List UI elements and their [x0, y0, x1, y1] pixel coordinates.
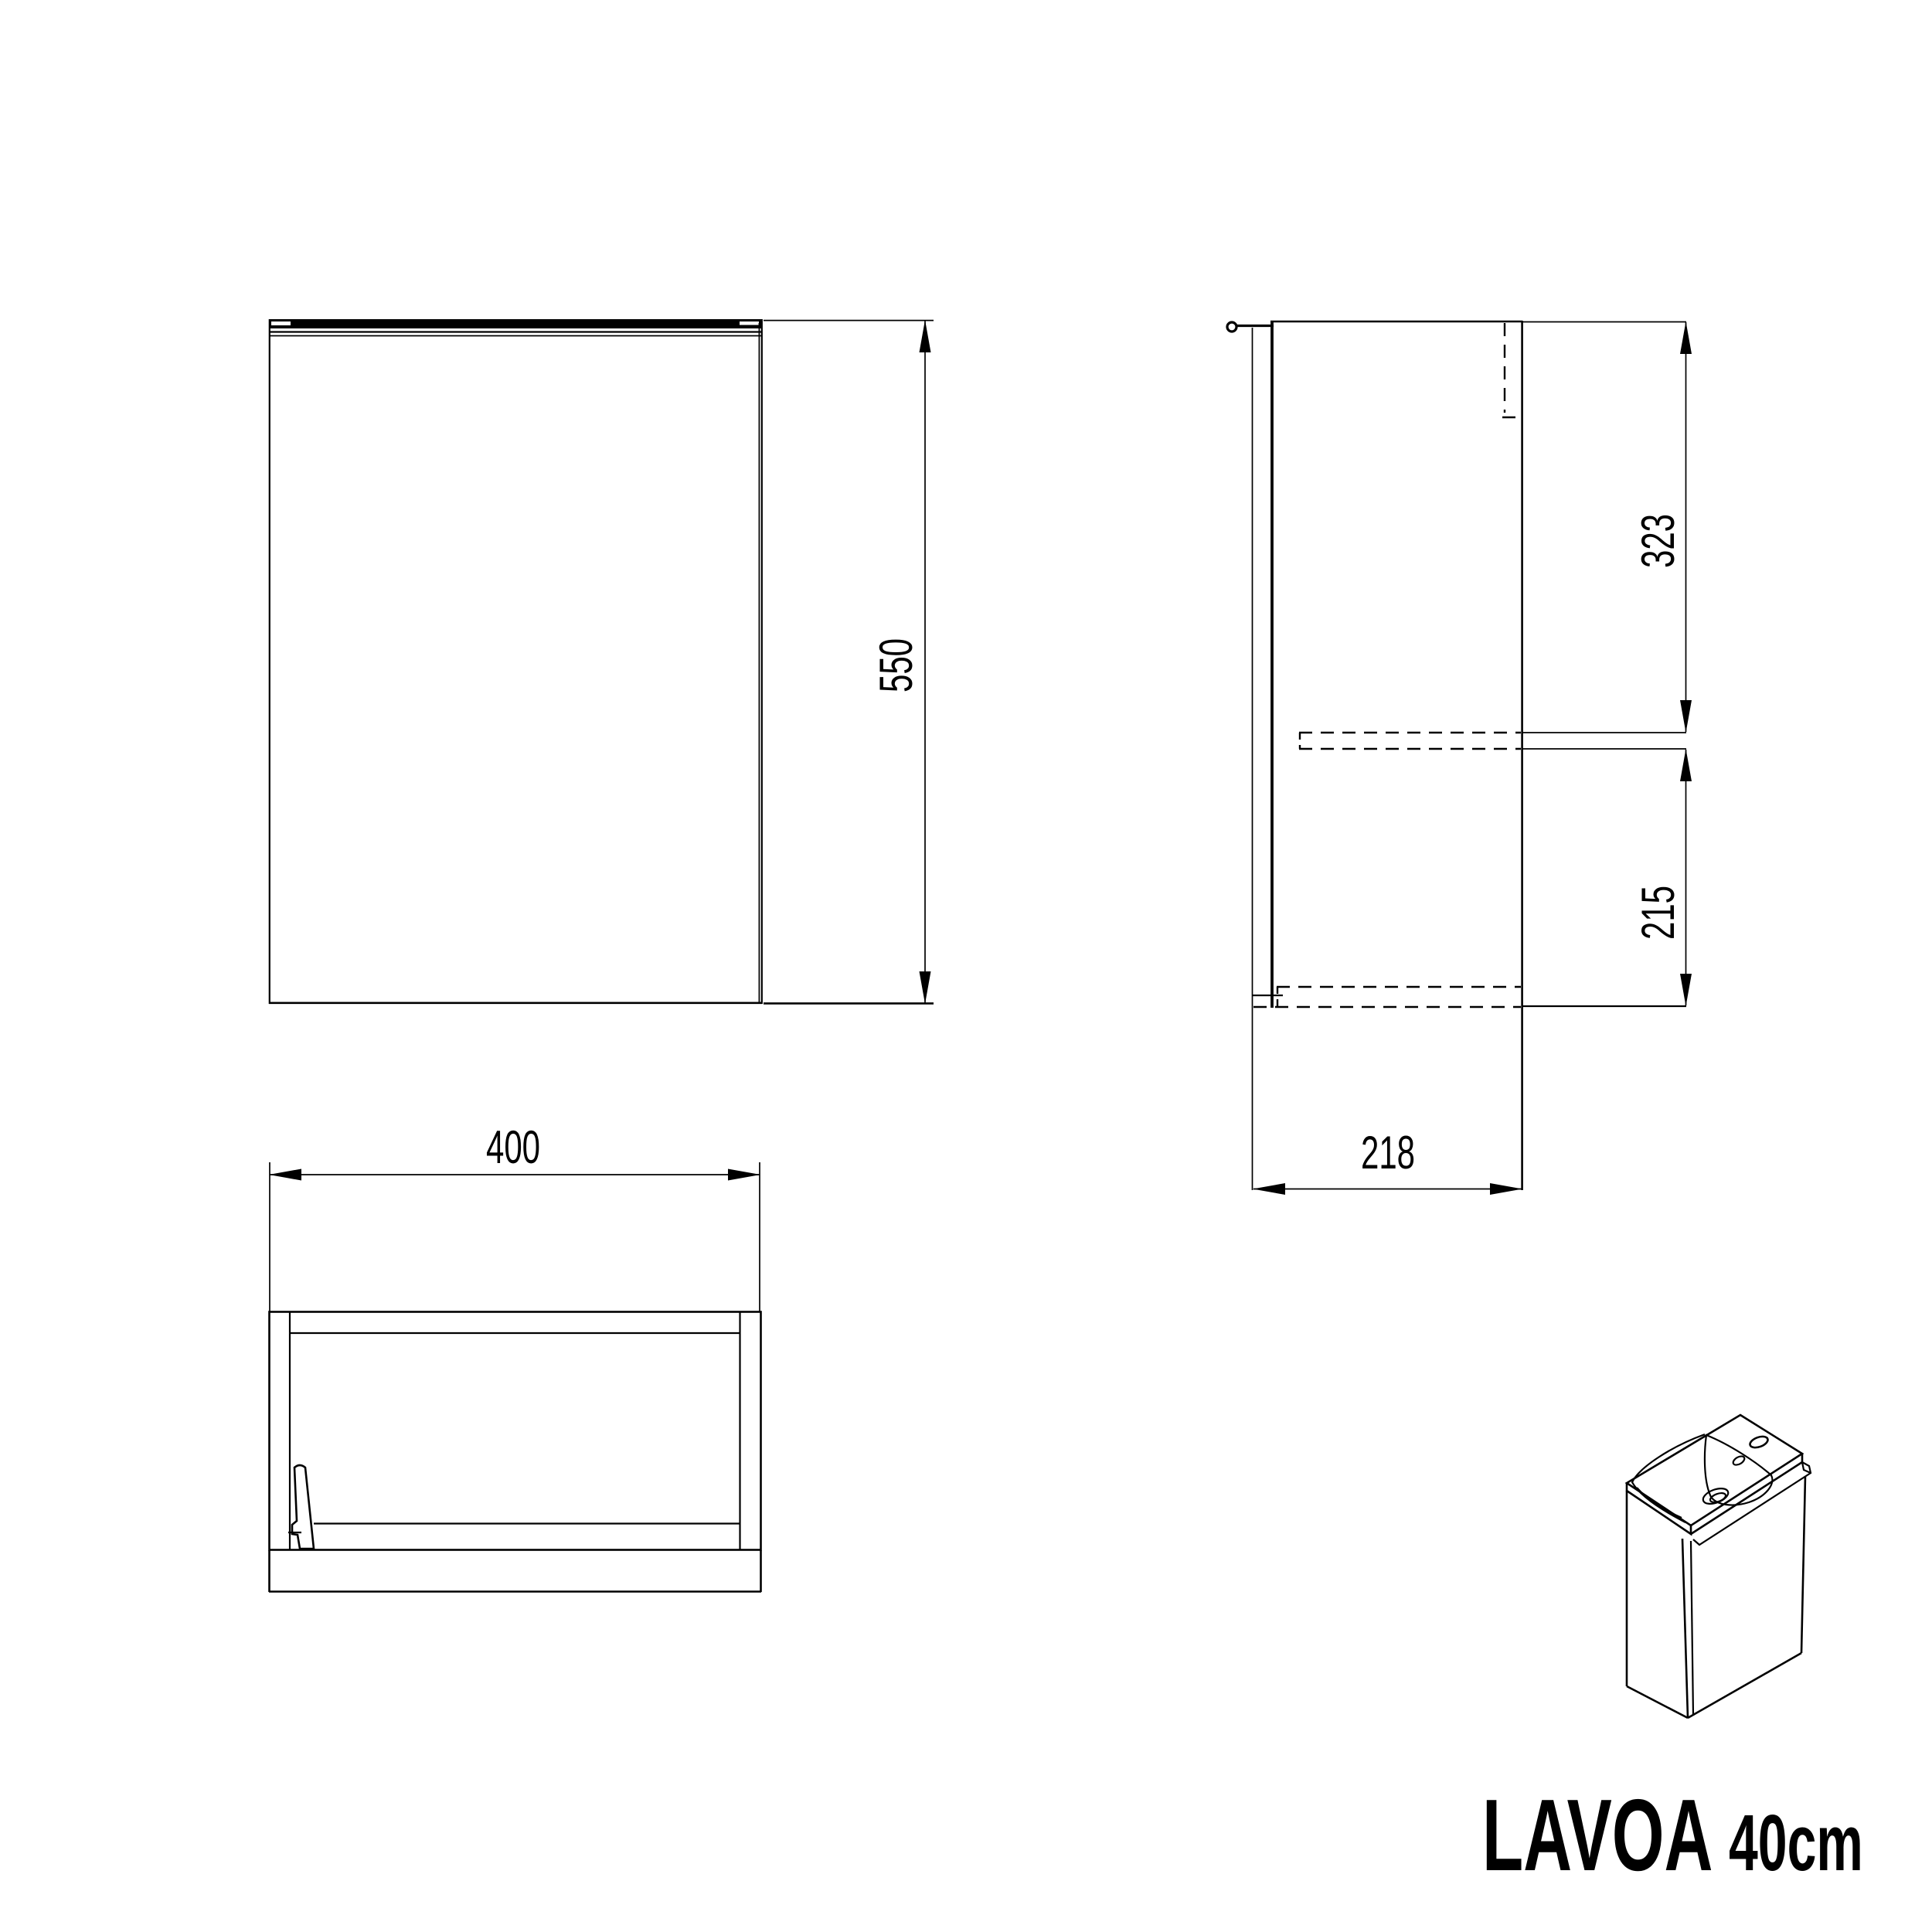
product-name: LAVOA — [1482, 1778, 1713, 1893]
technical-drawing-sheet: 550 323 215 — [0, 0, 1932, 1932]
iso-basin-slab-left-face — [1627, 1483, 1691, 1534]
iso-body-front-left-edge — [1682, 1539, 1688, 1718]
iso-door-hinge-gap — [1691, 1541, 1693, 1716]
iso-overflow-hole-icon — [1732, 1454, 1746, 1467]
side-depth-label: 218 — [1361, 1127, 1415, 1179]
iso-tap-hole-icon — [1749, 1434, 1770, 1450]
front-view: 550 — [269, 319, 934, 1004]
top-dim-arrow-left — [269, 1169, 301, 1181]
side-top-section-label: 323 — [1632, 514, 1684, 568]
isometric-sketch — [1627, 1415, 1811, 1718]
side-dim-323-arrow-up — [1680, 321, 1692, 354]
top-carcass-outline — [270, 1312, 761, 1550]
side-view: 323 215 218 — [1227, 321, 1692, 1195]
iso-door-bottom-edge — [1688, 1653, 1801, 1718]
side-bottom-section-label: 215 — [1632, 886, 1684, 940]
product-size: 40cm — [1729, 1799, 1863, 1887]
front-height-label: 550 — [870, 638, 922, 692]
side-dim-218-arrow-left — [1253, 1183, 1285, 1195]
top-view: 400 — [269, 1121, 761, 1592]
iso-body-bottom-left-edge — [1627, 1686, 1688, 1718]
side-dim-218-arrow-right — [1490, 1183, 1522, 1195]
top-faucet-icon — [292, 1465, 314, 1549]
side-dim-215-arrow-down — [1680, 974, 1692, 1006]
front-top-profile-endcap-right — [740, 321, 759, 325]
side-wall-hook-icon — [1227, 322, 1236, 332]
top-dim-arrow-right — [728, 1169, 760, 1181]
front-top-profile-band — [269, 319, 762, 328]
side-dim-323-arrow-down — [1680, 700, 1692, 733]
front-dim-arrow-up — [920, 320, 931, 352]
drawing-svg: 550 323 215 — [0, 0, 1932, 1932]
front-top-profile-endcap-left — [271, 321, 291, 325]
front-dim-arrow-down — [920, 971, 931, 1004]
top-width-label: 400 — [486, 1121, 540, 1173]
iso-drain-hole-inner-icon — [1709, 1492, 1726, 1505]
title-block: LAVOA 40cm — [1482, 1778, 1863, 1893]
side-dim-215-arrow-up — [1680, 749, 1692, 781]
iso-body-right-edge — [1801, 1476, 1805, 1653]
iso-bowl-outer-rim — [1632, 1434, 1705, 1522]
